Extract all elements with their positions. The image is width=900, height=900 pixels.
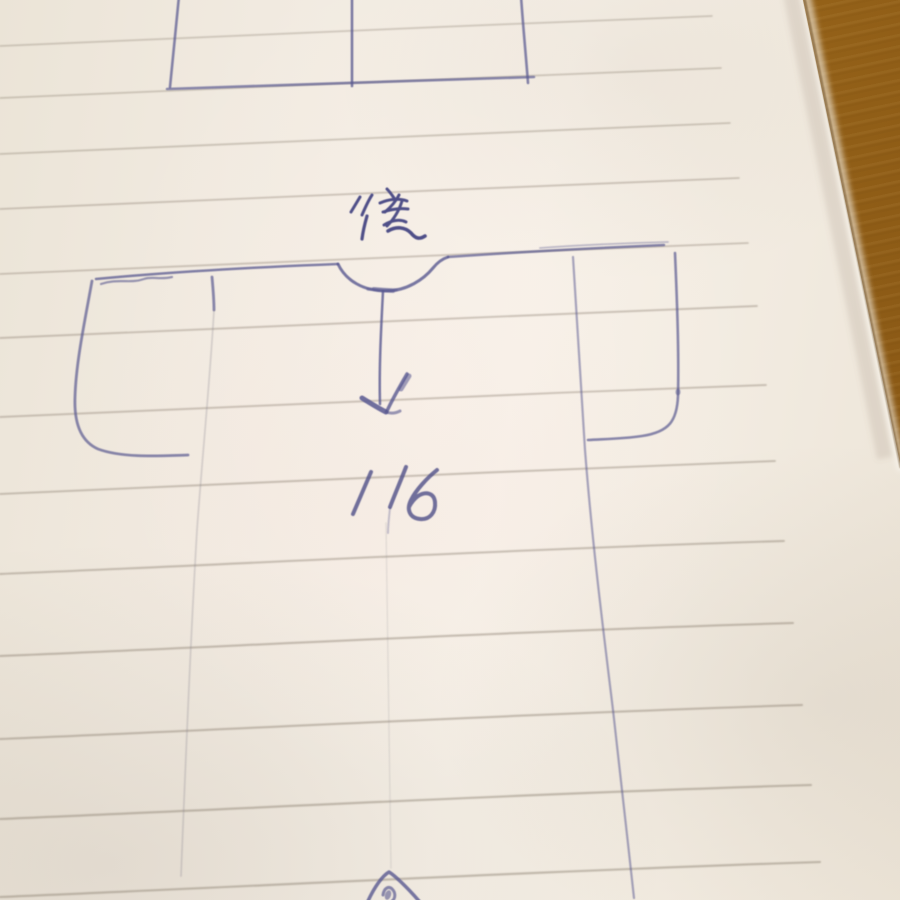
ruled-line (0, 16, 712, 46)
left-body-line-faint (181, 310, 214, 876)
ruled-line (0, 623, 793, 656)
ink-dot (675, 389, 680, 396)
ruled-line (0, 785, 811, 819)
ruled-line (0, 705, 802, 739)
edge-crease-shadow (791, 0, 885, 458)
ruled-line (0, 306, 757, 338)
center-line-faint (386, 523, 391, 868)
ruled-line (0, 178, 739, 209)
neckline-curve (338, 257, 448, 291)
ruled-line (0, 243, 748, 274)
ruled-lines (0, 16, 820, 897)
arrowhead-right-blob (401, 376, 409, 389)
right-sleeve-outline (588, 253, 678, 440)
top-sketch-hem-line (167, 77, 534, 89)
top-sketch-right-edge (521, 0, 528, 83)
ruled-line (0, 461, 775, 494)
digit-6 (409, 470, 437, 519)
right-body-line (573, 257, 634, 898)
arrow-stem (380, 291, 383, 404)
edge-dark-line (804, 0, 900, 468)
top-sketch-left-edge (170, 0, 179, 87)
bottom-sketch-fragment (368, 872, 419, 900)
sketch-overlay (0, 0, 900, 900)
left-sleeve-outline (75, 281, 188, 456)
top-garment-sketch (167, 0, 534, 89)
left-body-line-top (212, 277, 214, 310)
ruled-line (0, 123, 730, 154)
paper-edge-shading (791, 0, 900, 470)
digit-1-tail (388, 508, 390, 533)
shoulder-line-left (96, 264, 338, 279)
back-label-handwriting (351, 189, 425, 239)
photo-of-notebook-page: 後 116 (0, 0, 900, 900)
ruled-line (0, 541, 784, 574)
center-depth-arrow (362, 289, 409, 413)
digit-1-second (390, 467, 406, 507)
arrowhead-tail (386, 411, 400, 413)
back-garment-sketch (75, 242, 681, 898)
